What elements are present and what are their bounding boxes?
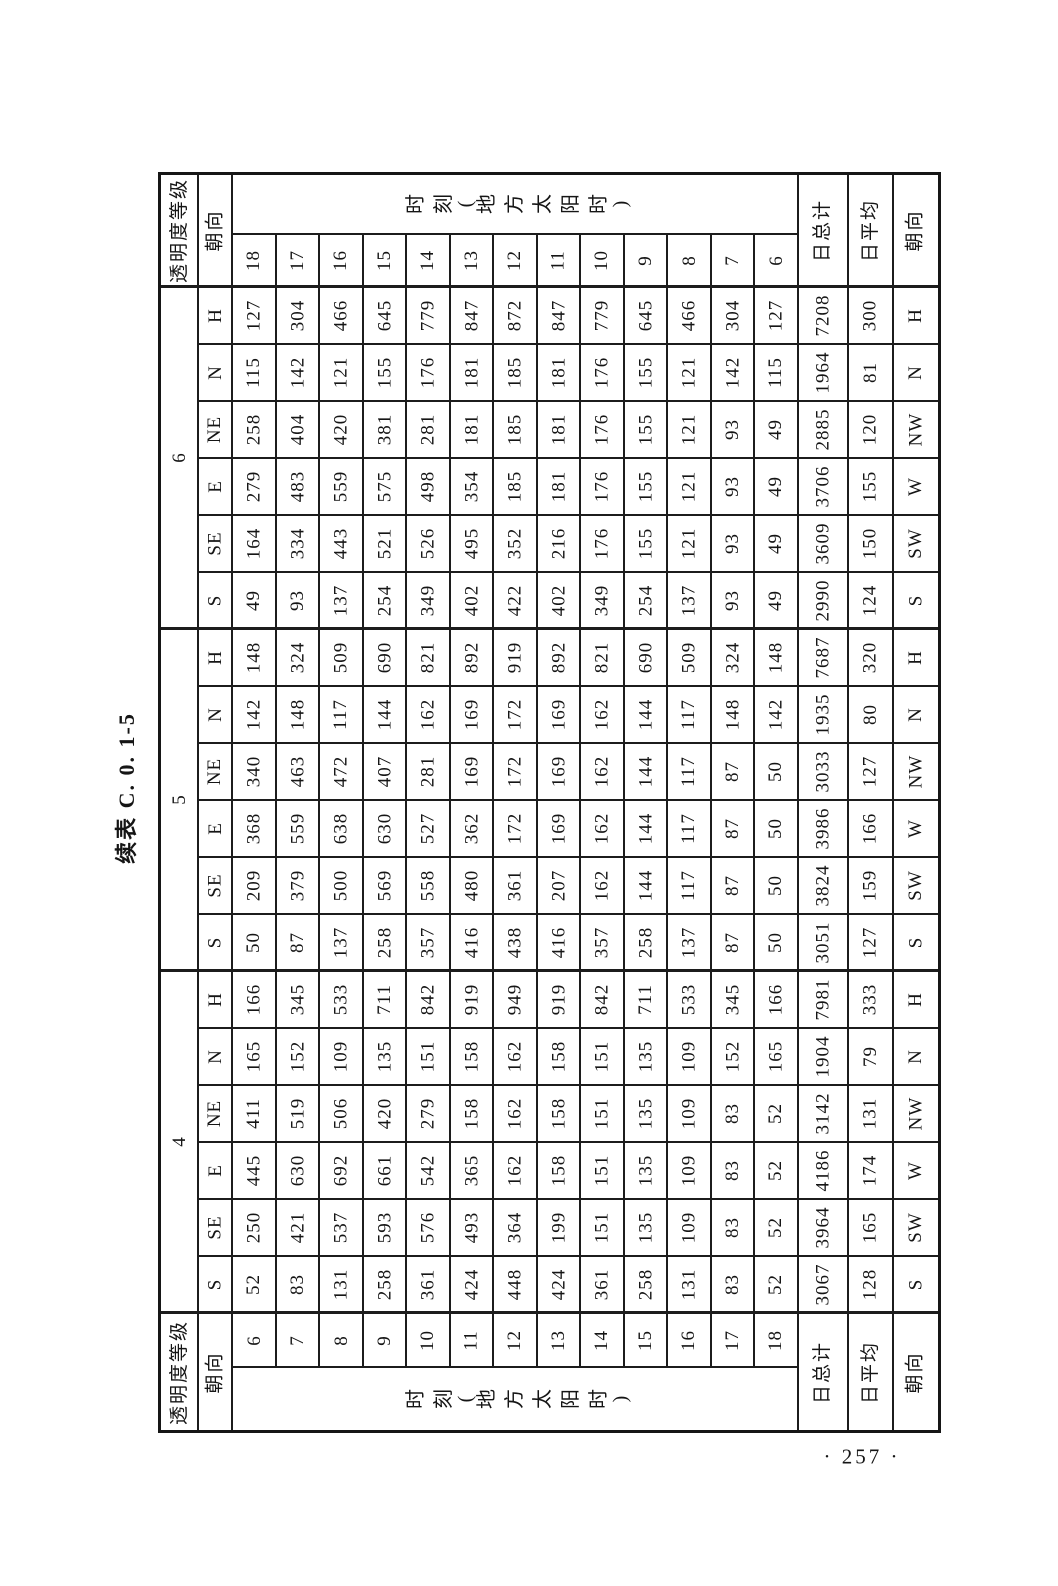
daily-average-4-H: 333 [849,972,894,1029]
daily-average-4-E: 174 [849,1143,894,1200]
value-cell-5-SE-c0: 209 [233,858,277,915]
value-cell-6-E-c1: 483 [277,459,321,516]
value-cell-6-H-c5: 847 [451,288,495,345]
value-cell-4-N-c8: 151 [581,1029,625,1086]
value-cell-6-E-c10: 121 [668,459,712,516]
value-cell-5-SE-c3: 569 [364,858,408,915]
value-cell-5-H-c1: 324 [277,630,321,687]
value-cell-6-N-c0: 115 [233,345,277,402]
value-cell-6-H-c9: 645 [625,288,669,345]
value-cell-5-E-c6: 172 [494,801,538,858]
value-cell-5-N-c12: 142 [755,687,799,744]
value-cell-6-E-c2: 559 [320,459,364,516]
value-cell-4-E-c10: 109 [668,1143,712,1200]
daily-average-6-S: 124 [849,573,894,630]
orientation-right-4-S: S [894,1257,938,1314]
value-cell-6-SE-c11: 93 [712,516,756,573]
value-cell-4-E-c4: 542 [407,1143,451,1200]
orientation-right-6-SW: SW [894,516,938,573]
value-cell-5-H-c7: 892 [538,630,582,687]
value-cell-4-H-c2: 533 [320,972,364,1029]
value-cell-5-N-c0: 142 [233,687,277,744]
orientation-right-5-NW: NW [894,744,938,801]
value-cell-4-N-c7: 158 [538,1029,582,1086]
daily-total-6-E: 3706 [799,459,849,516]
value-cell-5-NE-c8: 162 [581,744,625,801]
orientation-right-4-SW: SW [894,1200,938,1257]
header-time-10: 10 [581,235,625,288]
value-cell-5-H-c6: 919 [494,630,538,687]
value-cell-4-S-c11: 83 [712,1257,756,1314]
value-cell-6-E-c0: 279 [233,459,277,516]
value-cell-5-SE-c10: 117 [668,858,712,915]
orientation-left-6-SE: SE [199,516,233,573]
value-cell-4-N-c2: 109 [320,1029,364,1086]
header-orientation-right: 朝向 [894,175,938,288]
value-cell-5-E-c8: 162 [581,801,625,858]
value-cell-6-E-c6: 185 [494,459,538,516]
daily-average-5-H: 320 [849,630,894,687]
value-cell-5-H-c9: 690 [625,630,669,687]
value-cell-4-NE-c0: 411 [233,1086,277,1143]
value-cell-4-SE-c4: 576 [407,1200,451,1257]
value-cell-5-H-c11: 324 [712,630,756,687]
value-cell-6-SE-c8: 176 [581,516,625,573]
orientation-left-6-E: E [199,459,233,516]
value-cell-5-E-c3: 630 [364,801,408,858]
daily-average-5-N: 80 [849,687,894,744]
value-cell-4-S-c7: 424 [538,1257,582,1314]
page-number: · 257 · [824,1445,901,1470]
value-cell-4-NE-c9: 135 [625,1086,669,1143]
value-cell-4-SE-c6: 364 [494,1200,538,1257]
value-cell-4-SE-c1: 421 [277,1200,321,1257]
value-cell-6-N-c9: 155 [625,345,669,402]
orientation-left-4-SE: SE [199,1200,233,1257]
value-cell-6-S-c1: 93 [277,573,321,630]
value-cell-4-NE-c11: 83 [712,1086,756,1143]
value-cell-5-H-c5: 892 [451,630,495,687]
value-cell-6-NE-c7: 181 [538,402,582,459]
value-cell-4-H-c6: 949 [494,972,538,1029]
value-cell-4-H-c3: 711 [364,972,408,1029]
value-cell-4-N-c0: 165 [233,1029,277,1086]
footer-time-18: 18 [755,1314,799,1368]
value-cell-4-NE-c2: 506 [320,1086,364,1143]
value-cell-5-S-c3: 258 [364,915,408,972]
header-time-7: 7 [712,235,756,288]
value-cell-6-N-c11: 142 [712,345,756,402]
header-time-12: 12 [494,235,538,288]
footer-time-14: 14 [581,1314,625,1368]
footer-time-6: 6 [233,1314,277,1368]
value-cell-4-S-c2: 131 [320,1257,364,1314]
value-cell-4-H-c8: 842 [581,972,625,1029]
value-cell-4-SE-c12: 52 [755,1200,799,1257]
daily-total-4-E: 4186 [799,1143,849,1200]
value-cell-5-H-c2: 509 [320,630,364,687]
footer-daily-average: 日平均 [849,1314,894,1430]
orientation-right-6-H: H [894,288,938,345]
value-cell-6-S-c5: 402 [451,573,495,630]
value-cell-6-SE-c12: 49 [755,516,799,573]
orientation-right-5-N: N [894,687,938,744]
orientation-left-6-H: H [199,288,233,345]
value-cell-4-H-c7: 919 [538,972,582,1029]
footer-time-13: 13 [538,1314,582,1368]
value-cell-4-NE-c3: 420 [364,1086,408,1143]
value-cell-5-N-c11: 148 [712,687,756,744]
value-cell-5-S-c9: 258 [625,915,669,972]
value-cell-4-SE-c9: 135 [625,1200,669,1257]
footer-grade: 透明度等级 [161,1314,199,1430]
value-cell-6-SE-c5: 495 [451,516,495,573]
value-cell-6-NE-c10: 121 [668,402,712,459]
value-cell-4-S-c6: 448 [494,1257,538,1314]
value-cell-4-E-c3: 661 [364,1143,408,1200]
value-cell-6-E-c8: 176 [581,459,625,516]
value-cell-5-NE-c7: 169 [538,744,582,801]
value-cell-6-E-c4: 498 [407,459,451,516]
daily-average-4-N: 79 [849,1029,894,1086]
orientation-right-5-SW: SW [894,858,938,915]
value-cell-4-SE-c11: 83 [712,1200,756,1257]
value-cell-6-NE-c9: 155 [625,402,669,459]
value-cell-4-H-c11: 345 [712,972,756,1029]
value-cell-6-N-c5: 181 [451,345,495,402]
orientation-right-4-W: W [894,1143,938,1200]
value-cell-5-E-c9: 144 [625,801,669,858]
value-cell-6-NE-c3: 381 [364,402,408,459]
value-cell-6-NE-c12: 49 [755,402,799,459]
value-cell-6-SE-c2: 443 [320,516,364,573]
daily-total-6-NE: 2885 [799,402,849,459]
value-cell-4-SE-c7: 199 [538,1200,582,1257]
value-cell-4-SE-c5: 493 [451,1200,495,1257]
value-cell-4-SE-c0: 250 [233,1200,277,1257]
footer-time-label: 时刻(地方太阳时) [233,1368,799,1430]
orientation-left-4-S: S [199,1257,233,1314]
value-cell-5-NE-c0: 340 [233,744,277,801]
value-cell-6-N-c4: 176 [407,345,451,402]
value-cell-6-S-c9: 254 [625,573,669,630]
value-cell-5-NE-c6: 172 [494,744,538,801]
header-time-13: 13 [451,235,495,288]
daily-average-5-SE: 159 [849,858,894,915]
value-cell-4-H-c12: 166 [755,972,799,1029]
value-cell-4-H-c4: 842 [407,972,451,1029]
value-cell-4-NE-c6: 162 [494,1086,538,1143]
value-cell-4-E-c2: 692 [320,1143,364,1200]
value-cell-6-N-c1: 142 [277,345,321,402]
value-cell-5-NE-c1: 463 [277,744,321,801]
value-cell-5-SE-c6: 361 [494,858,538,915]
value-cell-6-E-c9: 155 [625,459,669,516]
daily-total-4-H: 7981 [799,972,849,1029]
value-cell-5-N-c7: 169 [538,687,582,744]
value-cell-4-E-c1: 630 [277,1143,321,1200]
value-cell-6-S-c3: 254 [364,573,408,630]
value-cell-5-E-c2: 638 [320,801,364,858]
value-cell-5-H-c3: 690 [364,630,408,687]
value-cell-4-NE-c4: 279 [407,1086,451,1143]
footer-orientation-right: 朝向 [894,1314,938,1430]
value-cell-6-H-c6: 872 [494,288,538,345]
value-cell-4-NE-c5: 158 [451,1086,495,1143]
header-time-8: 8 [668,235,712,288]
grade-label-6: 6 [161,288,199,630]
value-cell-6-N-c7: 181 [538,345,582,402]
value-cell-5-H-c10: 509 [668,630,712,687]
grade-label-4: 4 [161,972,199,1314]
footer-time-16: 16 [668,1314,712,1368]
orientation-right-6-N: N [894,345,938,402]
value-cell-5-S-c1: 87 [277,915,321,972]
value-cell-4-E-c7: 158 [538,1143,582,1200]
orientation-left-5-H: H [199,630,233,687]
value-cell-5-S-c2: 137 [320,915,364,972]
value-cell-5-NE-c4: 281 [407,744,451,801]
daily-average-4-SE: 165 [849,1200,894,1257]
header-time-14: 14 [407,235,451,288]
footer-daily-total: 日总计 [799,1314,849,1430]
value-cell-5-N-c5: 169 [451,687,495,744]
value-cell-4-SE-c2: 537 [320,1200,364,1257]
daily-total-6-N: 1964 [799,345,849,402]
value-cell-4-H-c5: 919 [451,972,495,1029]
value-cell-4-N-c1: 152 [277,1029,321,1086]
value-cell-6-E-c3: 575 [364,459,408,516]
value-cell-6-SE-c1: 334 [277,516,321,573]
header-time-9: 9 [625,235,669,288]
value-cell-5-S-c0: 50 [233,915,277,972]
orientation-right-4-NW: NW [894,1086,938,1143]
value-cell-6-NE-c6: 185 [494,402,538,459]
footer-time-label-text: 时刻(地方太阳时) [406,1389,623,1409]
value-cell-6-N-c12: 115 [755,345,799,402]
value-cell-6-S-c10: 137 [668,573,712,630]
value-cell-5-SE-c2: 500 [320,858,364,915]
value-cell-5-N-c2: 117 [320,687,364,744]
orientation-left-5-S: S [199,915,233,972]
orientation-right-5-W: W [894,801,938,858]
value-cell-5-N-c6: 172 [494,687,538,744]
value-cell-5-NE-c11: 87 [712,744,756,801]
value-cell-4-S-c5: 424 [451,1257,495,1314]
value-cell-5-S-c10: 137 [668,915,712,972]
value-cell-5-S-c8: 357 [581,915,625,972]
value-cell-5-S-c12: 50 [755,915,799,972]
footer-time-11: 11 [451,1314,495,1368]
value-cell-4-NE-c7: 158 [538,1086,582,1143]
value-cell-5-S-c6: 438 [494,915,538,972]
orientation-right-6-W: W [894,459,938,516]
daily-average-5-NE: 127 [849,744,894,801]
footer-time-10: 10 [407,1314,451,1368]
value-cell-6-E-c12: 49 [755,459,799,516]
value-cell-5-E-c7: 169 [538,801,582,858]
value-cell-4-NE-c1: 519 [277,1086,321,1143]
header-daily-total: 日总计 [799,175,849,288]
value-cell-6-NE-c2: 420 [320,402,364,459]
value-cell-4-N-c6: 162 [494,1029,538,1086]
header-time-6: 6 [755,235,799,288]
value-cell-5-H-c0: 148 [233,630,277,687]
value-cell-5-SE-c1: 379 [277,858,321,915]
daily-total-4-N: 1904 [799,1029,849,1086]
value-cell-5-SE-c11: 87 [712,858,756,915]
daily-total-6-S: 2990 [799,573,849,630]
value-cell-5-NE-c10: 117 [668,744,712,801]
value-cell-5-NE-c3: 407 [364,744,408,801]
header-orientation-left: 朝向 [199,175,233,288]
value-cell-5-S-c11: 87 [712,915,756,972]
value-cell-4-E-c5: 365 [451,1143,495,1200]
value-cell-4-N-c3: 135 [364,1029,408,1086]
value-cell-6-N-c2: 121 [320,345,364,402]
value-cell-5-S-c4: 357 [407,915,451,972]
value-cell-5-N-c9: 144 [625,687,669,744]
value-cell-5-E-c4: 527 [407,801,451,858]
value-cell-5-E-c0: 368 [233,801,277,858]
value-cell-5-E-c12: 50 [755,801,799,858]
value-cell-6-NE-c1: 404 [277,402,321,459]
value-cell-5-SE-c8: 162 [581,858,625,915]
daily-total-6-SE: 3609 [799,516,849,573]
daily-average-6-N: 81 [849,345,894,402]
daily-total-5-NE: 3033 [799,744,849,801]
value-cell-6-E-c11: 93 [712,459,756,516]
value-cell-6-H-c7: 847 [538,288,582,345]
value-cell-6-S-c11: 93 [712,573,756,630]
header-time-label: 时刻(地方太阳时) [233,175,799,235]
value-cell-5-N-c4: 162 [407,687,451,744]
footer-time-9: 9 [364,1314,408,1368]
daily-total-5-SE: 3824 [799,858,849,915]
value-cell-5-SE-c5: 480 [451,858,495,915]
orientation-right-6-S: S [894,573,938,630]
value-cell-4-H-c0: 166 [233,972,277,1029]
value-cell-6-H-c0: 127 [233,288,277,345]
header-time-16: 16 [320,235,364,288]
value-cell-4-N-c11: 152 [712,1029,756,1086]
orientation-left-5-SE: SE [199,858,233,915]
orientation-left-6-N: N [199,345,233,402]
daily-average-6-E: 155 [849,459,894,516]
orientation-left-4-N: N [199,1029,233,1086]
value-cell-4-N-c9: 135 [625,1029,669,1086]
grade-label-5: 5 [161,630,199,972]
value-cell-6-SE-c6: 352 [494,516,538,573]
value-cell-6-SE-c7: 216 [538,516,582,573]
table-caption: 续表 C. 0. 1-5 [109,712,141,864]
value-cell-5-N-c8: 162 [581,687,625,744]
value-cell-5-H-c12: 148 [755,630,799,687]
value-cell-6-E-c5: 354 [451,459,495,516]
orientation-right-5-H: H [894,630,938,687]
value-cell-6-SE-c0: 164 [233,516,277,573]
value-cell-6-H-c1: 304 [277,288,321,345]
value-cell-6-H-c11: 304 [712,288,756,345]
header-time-17: 17 [277,235,321,288]
value-cell-4-E-c12: 52 [755,1143,799,1200]
header-time-11: 11 [538,235,582,288]
value-cell-6-E-c7: 181 [538,459,582,516]
orientation-left-4-E: E [199,1143,233,1200]
value-cell-5-SE-c12: 50 [755,858,799,915]
value-cell-4-S-c9: 258 [625,1257,669,1314]
value-cell-5-SE-c7: 207 [538,858,582,915]
daily-average-6-NE: 120 [849,402,894,459]
orientation-right-4-N: N [894,1029,938,1086]
value-cell-6-SE-c9: 155 [625,516,669,573]
daily-total-6-H: 7208 [799,288,849,345]
value-cell-5-E-c11: 87 [712,801,756,858]
value-cell-6-H-c10: 466 [668,288,712,345]
daily-average-5-E: 166 [849,801,894,858]
daily-total-4-S: 3067 [799,1257,849,1314]
header-time-15: 15 [364,235,408,288]
value-cell-5-NE-c5: 169 [451,744,495,801]
value-cell-4-S-c4: 361 [407,1257,451,1314]
value-cell-4-H-c9: 711 [625,972,669,1029]
value-cell-4-SE-c3: 593 [364,1200,408,1257]
value-cell-4-NE-c8: 151 [581,1086,625,1143]
daily-average-6-SE: 150 [849,516,894,573]
value-cell-6-SE-c3: 521 [364,516,408,573]
value-cell-4-SE-c10: 109 [668,1200,712,1257]
value-cell-4-S-c12: 52 [755,1257,799,1314]
orientation-left-5-NE: NE [199,744,233,801]
value-cell-4-SE-c8: 151 [581,1200,625,1257]
value-cell-4-E-c11: 83 [712,1143,756,1200]
value-cell-4-S-c3: 258 [364,1257,408,1314]
daily-average-6-H: 300 [849,288,894,345]
value-cell-5-E-c1: 559 [277,801,321,858]
value-cell-5-S-c7: 416 [538,915,582,972]
value-cell-4-H-c1: 345 [277,972,321,1029]
footer-time-8: 8 [320,1314,364,1368]
value-cell-6-H-c12: 127 [755,288,799,345]
value-cell-4-NE-c12: 52 [755,1086,799,1143]
daily-average-4-NE: 131 [849,1086,894,1143]
value-cell-6-NE-c11: 93 [712,402,756,459]
footer-time-12: 12 [494,1314,538,1368]
daily-total-5-H: 7687 [799,630,849,687]
value-cell-5-NE-c9: 144 [625,744,669,801]
value-cell-4-S-c1: 83 [277,1257,321,1314]
value-cell-5-H-c4: 821 [407,630,451,687]
value-cell-4-S-c0: 52 [233,1257,277,1314]
orientation-left-5-E: E [199,801,233,858]
value-cell-4-E-c0: 445 [233,1143,277,1200]
value-cell-5-H-c8: 821 [581,630,625,687]
daily-average-5-S: 127 [849,915,894,972]
value-cell-4-H-c10: 533 [668,972,712,1029]
value-cell-6-S-c4: 349 [407,573,451,630]
daily-total-5-N: 1935 [799,687,849,744]
value-cell-6-SE-c10: 121 [668,516,712,573]
value-cell-5-NE-c2: 472 [320,744,364,801]
value-cell-4-E-c9: 135 [625,1143,669,1200]
value-cell-6-H-c3: 645 [364,288,408,345]
value-cell-4-E-c8: 151 [581,1143,625,1200]
daily-total-4-NE: 3142 [799,1086,849,1143]
value-cell-5-SE-c9: 144 [625,858,669,915]
value-cell-6-S-c8: 349 [581,573,625,630]
value-cell-6-NE-c4: 281 [407,402,451,459]
daily-total-5-E: 3986 [799,801,849,858]
